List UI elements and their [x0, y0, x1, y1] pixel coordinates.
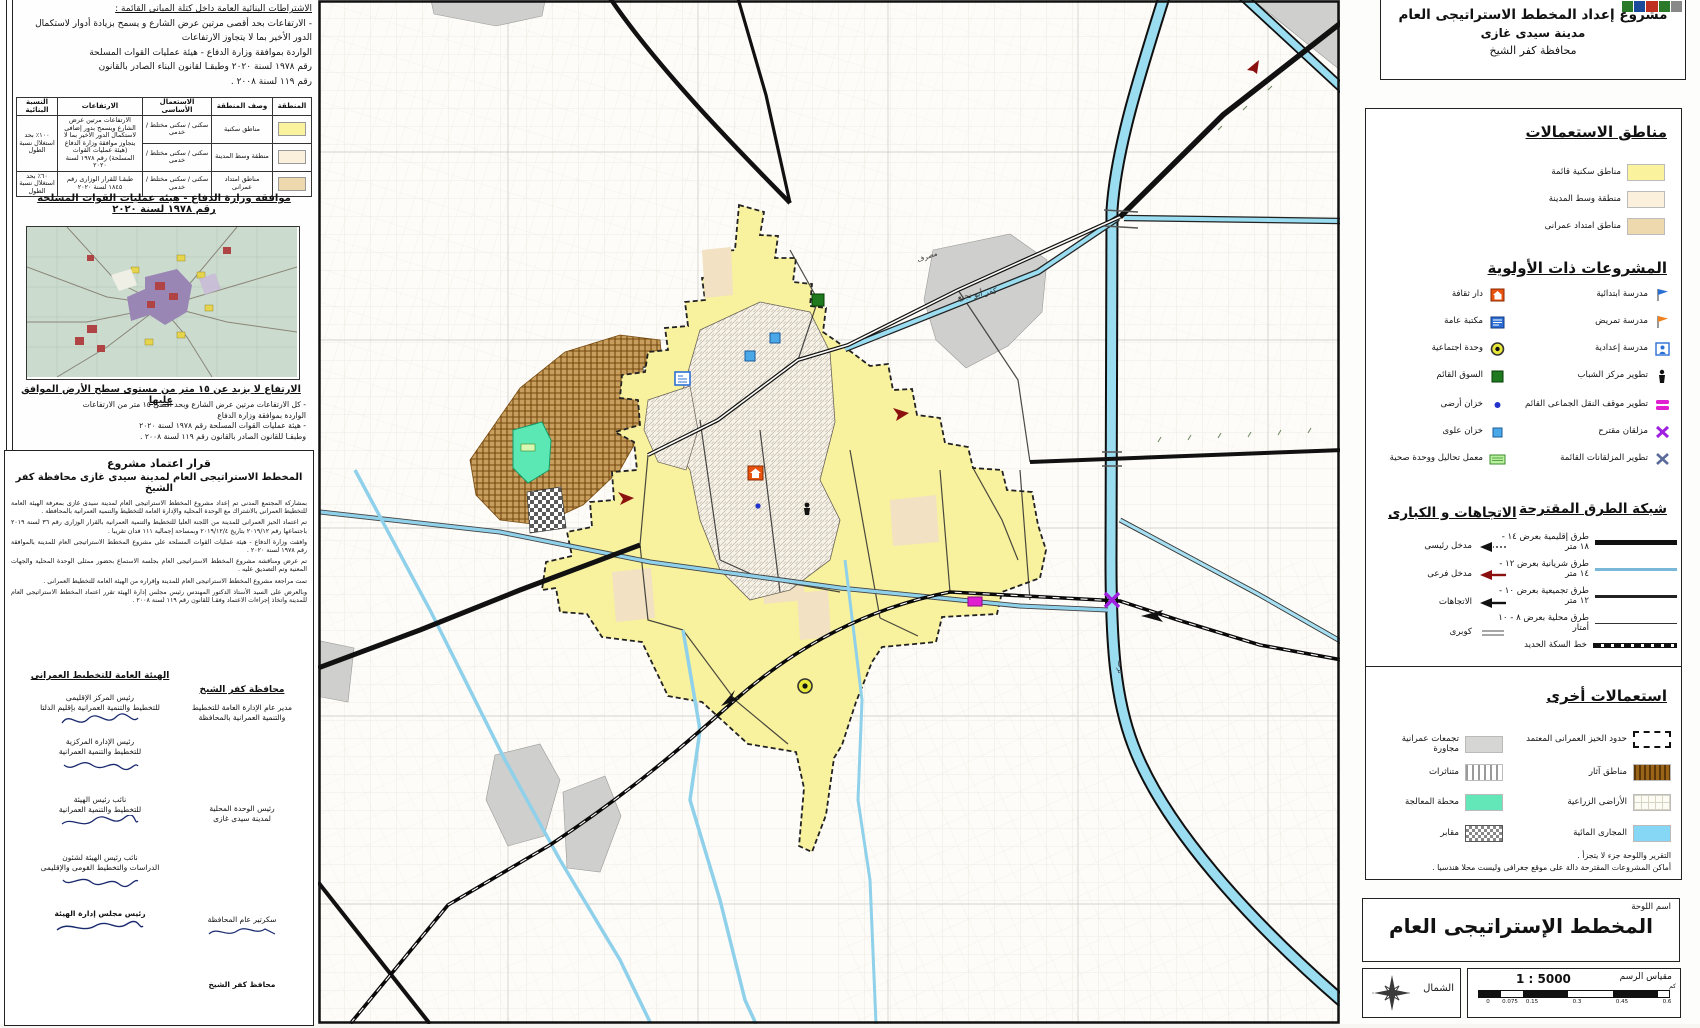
- legend-note-2: أماكن المشروعات المقترحة دالة على موقع ج…: [1432, 863, 1671, 872]
- map-canvas: كفر أبو نجيع ترعة مصرف: [318, 0, 1340, 1024]
- local-road-sample: [1595, 623, 1677, 625]
- zone-ratio: ١٠٠٪ بحد استغلال نسبة الطول: [17, 116, 58, 172]
- railway-sample: [1593, 643, 1677, 648]
- legend-item: محطة المعالجة: [1375, 794, 1503, 811]
- main-map: كفر أبو نجيع ترعة مصرف: [318, 0, 1340, 1024]
- scale-unit: كم: [1669, 983, 1676, 990]
- city-center-swatch: [1627, 191, 1665, 208]
- signature-mark: [60, 757, 140, 773]
- signature-mark: [60, 713, 140, 729]
- col-header: الاستعمال الأساسى: [143, 98, 212, 116]
- primary-school-flag-icon: [1654, 287, 1671, 303]
- legend-item: طرق محلية بعرض ٨ - ١٠ أمتار: [1495, 614, 1677, 633]
- prep-school-icon: [1654, 341, 1671, 357]
- legend-item: معمل تحاليل ووحدة صحية: [1381, 451, 1506, 467]
- elevated-tank-icon: [745, 351, 755, 361]
- legend-item: مدرسة ابتدائية: [1511, 287, 1671, 303]
- building-regulations-note: الاشتراطات البنائية العامة داخل كتلة الم…: [16, 2, 312, 89]
- legend-item: تطوير مركز الشباب: [1511, 368, 1671, 384]
- legend-item: مدرسة تمريض: [1511, 314, 1671, 330]
- decree-paragraphs: بمشاركة المجتمع المدنى تم إعداد مشروع ال…: [5, 500, 313, 605]
- canal-label: ترعة: [1116, 660, 1124, 674]
- legend-item: مناطق امتداد عمرانى: [1475, 218, 1665, 235]
- legend-item: خط السكة الحديد: [1495, 641, 1677, 651]
- health-lab-icon: [1489, 451, 1506, 467]
- extension-swatch: [1627, 218, 1665, 235]
- approved-boundary-swatch: [1633, 731, 1671, 748]
- ground-tank-icon: [1489, 397, 1506, 413]
- legend-item: مكتبة عامة: [1381, 314, 1506, 330]
- legend-item: خزان أرضى: [1381, 397, 1506, 413]
- zone-desc: منطقة وسط المدينة: [212, 143, 273, 171]
- legend-note-1: التقرير واللوحة جزء لا يتجزأ .: [1577, 851, 1671, 860]
- legend-item: مدخل رئيسى: [1386, 541, 1508, 553]
- legend-item: طرق شريانية بعرض ١٢ - ١٤ متر: [1495, 560, 1677, 579]
- legend-item: المجارى المائية: [1513, 825, 1671, 842]
- legend-directions-title: الاتجاهات و الكبارى: [1388, 505, 1517, 521]
- zoning-table: المنطقة وصف المنطقة الاستعمال الأساسى ال…: [16, 97, 312, 197]
- legend-item: وحدة اجتماعية: [1381, 341, 1506, 357]
- sig-block: رئيس المركز الإقليمىللتخطيط والتنمية الع…: [25, 693, 175, 937]
- market-icon: [812, 294, 824, 306]
- decree-box: قرار اعتماد مشروع المخطط الاستراتيجى الع…: [4, 450, 314, 1026]
- zone-heights: الارتفاعات مرتين عرض الشارع ويسمح بدور إ…: [58, 116, 143, 172]
- title-block: مشروع إعداد المخطط الاستراتيجى العام مدي…: [1380, 0, 1686, 80]
- legend-item: الأراضى الزراعية: [1513, 794, 1671, 811]
- treatment-plant-swatch: [1465, 794, 1503, 811]
- north-box: الشمال: [1362, 968, 1461, 1018]
- gopp-header: الهيئة العامة للتخطيط العمرانى: [25, 671, 175, 681]
- compass-rose-icon: [1371, 973, 1413, 1013]
- neighbor-settlement-swatch: [1465, 736, 1503, 753]
- school-icon: [770, 333, 780, 343]
- nursing-school-flag-icon: [1654, 314, 1671, 330]
- col-header: المنطقة: [273, 98, 312, 116]
- ground-tank-icon: [755, 503, 760, 508]
- zone-desc: مناطق سكنية: [212, 116, 273, 144]
- zone-use: سكنى / سكنى مختلط / خدمى: [143, 116, 212, 144]
- gopp-logo: [1622, 1, 1682, 12]
- defense-approval-heading: موافقة وزارة الدفاع - هيئة عمليات القوات…: [16, 193, 312, 215]
- legend-box: مناطق الاستعمالات مناطق سكنية قائمة منطق…: [1365, 108, 1682, 880]
- market-icon: [1489, 368, 1506, 384]
- signature-mark: [55, 920, 145, 936]
- legend-item: السوق القائم: [1381, 368, 1506, 384]
- youth-center-icon: [1654, 368, 1671, 384]
- bridge-icon: [1478, 627, 1508, 639]
- social-unit-icon: [1489, 341, 1506, 357]
- scattered-structures-swatch: [1465, 764, 1503, 781]
- arterial-road-sample: [1595, 568, 1677, 571]
- legend-item: طرق إقليمية بعرض ١٤ - ١٨ متر: [1495, 533, 1677, 552]
- residential-swatch: [1627, 164, 1665, 181]
- public-library-icon: [1489, 314, 1506, 330]
- legend-item: طرق تجميعية بعرض ١٠ - ١٢ متر: [1495, 587, 1677, 606]
- decree-title-2: المخطط الاستراتيجى العام لمدينة سيدى غاز…: [5, 472, 313, 494]
- proposed-crossing-icon: [1654, 424, 1671, 440]
- legend-item: منطقة وسط المدينة: [1475, 191, 1665, 208]
- culture-house-icon: [1489, 287, 1506, 303]
- legend-item: كوبرى: [1386, 627, 1508, 639]
- legend-item: مدخل فرعى: [1386, 569, 1508, 581]
- col-header: النسبة البنائية: [17, 98, 58, 116]
- sub-entrance-arrow-icon: [1478, 569, 1508, 581]
- scale-label: مقياس الرسم: [1620, 972, 1672, 986]
- legend-item: تجمعات عمرانية مجاورة: [1375, 735, 1503, 754]
- decree-title-1: قرار اعتماد مشروع: [5, 457, 313, 470]
- regional-road-sample: [1595, 540, 1677, 545]
- existing-crossing-icon: [1654, 451, 1671, 467]
- legend-item: مقابر: [1375, 825, 1503, 842]
- legend-roads-title: شبكة الطرق المقترحة: [1519, 501, 1667, 517]
- legend-item: الاتجاهات: [1386, 597, 1508, 609]
- city-name: مدينة سيدى غازى: [1381, 26, 1685, 40]
- legend-priority-title: المشروعات ذات الأولوية: [1488, 259, 1667, 277]
- legend-divider: [1366, 666, 1681, 667]
- scale-box: مقياس الرسم 1 : 5000 0 0.075 0.15 0.3 0.…: [1467, 968, 1681, 1018]
- col-header: وصف المنطقة: [212, 98, 273, 116]
- legend-item: دار ثقافة: [1381, 287, 1506, 303]
- scale-value: 1 : 5000: [1516, 972, 1571, 986]
- height-limit-notes: - كل الارتفاعات مرتين عرض الشارع وبحد أق…: [16, 400, 306, 442]
- defense-inset-map: [26, 226, 300, 380]
- transport-stop-icon: [968, 597, 982, 606]
- scale-bar: [1478, 990, 1670, 998]
- transport-stop-icon: [1654, 397, 1671, 413]
- collector-road-sample: [1595, 595, 1677, 598]
- col-header: الارتفاعات: [58, 98, 143, 116]
- elevated-tank-icon: [1489, 424, 1506, 440]
- legend-item: مدرسة إعدادية: [1511, 341, 1671, 357]
- legend-item: مناطق آثار: [1513, 764, 1671, 781]
- governorate-name: محافظة كفر الشيخ: [1381, 44, 1685, 57]
- legend-other-title: استعمالات أخرى: [1546, 687, 1667, 705]
- plan-sheet: { "title_block": { "line1": "مشروع إعداد…: [0, 0, 1700, 1024]
- legend-item: حدود الحيز العمرانى المعتمد: [1513, 731, 1671, 748]
- sheet-name: المخطط الإستراتيجى العام: [1363, 914, 1679, 938]
- signature-mark: [60, 873, 140, 889]
- waterways-swatch: [1633, 825, 1671, 842]
- left-notes-panel: الاشتراطات البنائية العامة داخل كتلة الم…: [0, 0, 318, 1024]
- sig-block: مدير عام الإدارة العامة للتخطيطوالتنمية …: [183, 703, 301, 989]
- scale-ticks: 0 0.075 0.15 0.3 0.45 0.6: [1478, 999, 1670, 1007]
- sheet-name-label: اسم اللوحة: [1363, 902, 1671, 912]
- governorate-header: محافظة كفر الشيخ: [183, 685, 301, 695]
- legend-item: مزلقان مقترح: [1511, 424, 1671, 440]
- signature-mark: [60, 815, 140, 831]
- legend-panel: مشروع إعداد المخطط الاستراتيجى العام مدي…: [1340, 0, 1700, 1024]
- treatment-plant-label-box: [521, 444, 535, 451]
- archaeology-swatch: [1633, 764, 1671, 781]
- agricultural-land-swatch: [1633, 794, 1671, 811]
- zone-use: سكنى / سكنى مختلط / خدمى: [143, 143, 212, 171]
- legend-item: تطوير المزلقانات القائمة: [1511, 451, 1671, 467]
- legend-uses-title: مناطق الاستعمالات: [1526, 123, 1668, 141]
- cemeteries-swatch: [1465, 825, 1503, 842]
- main-entrance-arrow-icon: [1478, 541, 1508, 553]
- legend-item: مناطق سكنية قائمة: [1475, 164, 1665, 181]
- north-label: الشمال: [1423, 983, 1454, 994]
- youth-center-icon: [804, 503, 810, 515]
- sheet-name-box: اسم اللوحة المخطط الإستراتيجى العام: [1362, 898, 1680, 962]
- legend-item: خزان علوى: [1381, 424, 1506, 440]
- zone-swatch-cell: [273, 116, 312, 144]
- direction-arrow-icon: [1478, 597, 1508, 609]
- legend-item: متناثرات: [1375, 764, 1503, 781]
- zone-swatch-cell: [273, 143, 312, 171]
- signature-mark: [207, 926, 277, 940]
- legend-item: تطوير موقف النقل الجماعى القائم: [1511, 397, 1671, 413]
